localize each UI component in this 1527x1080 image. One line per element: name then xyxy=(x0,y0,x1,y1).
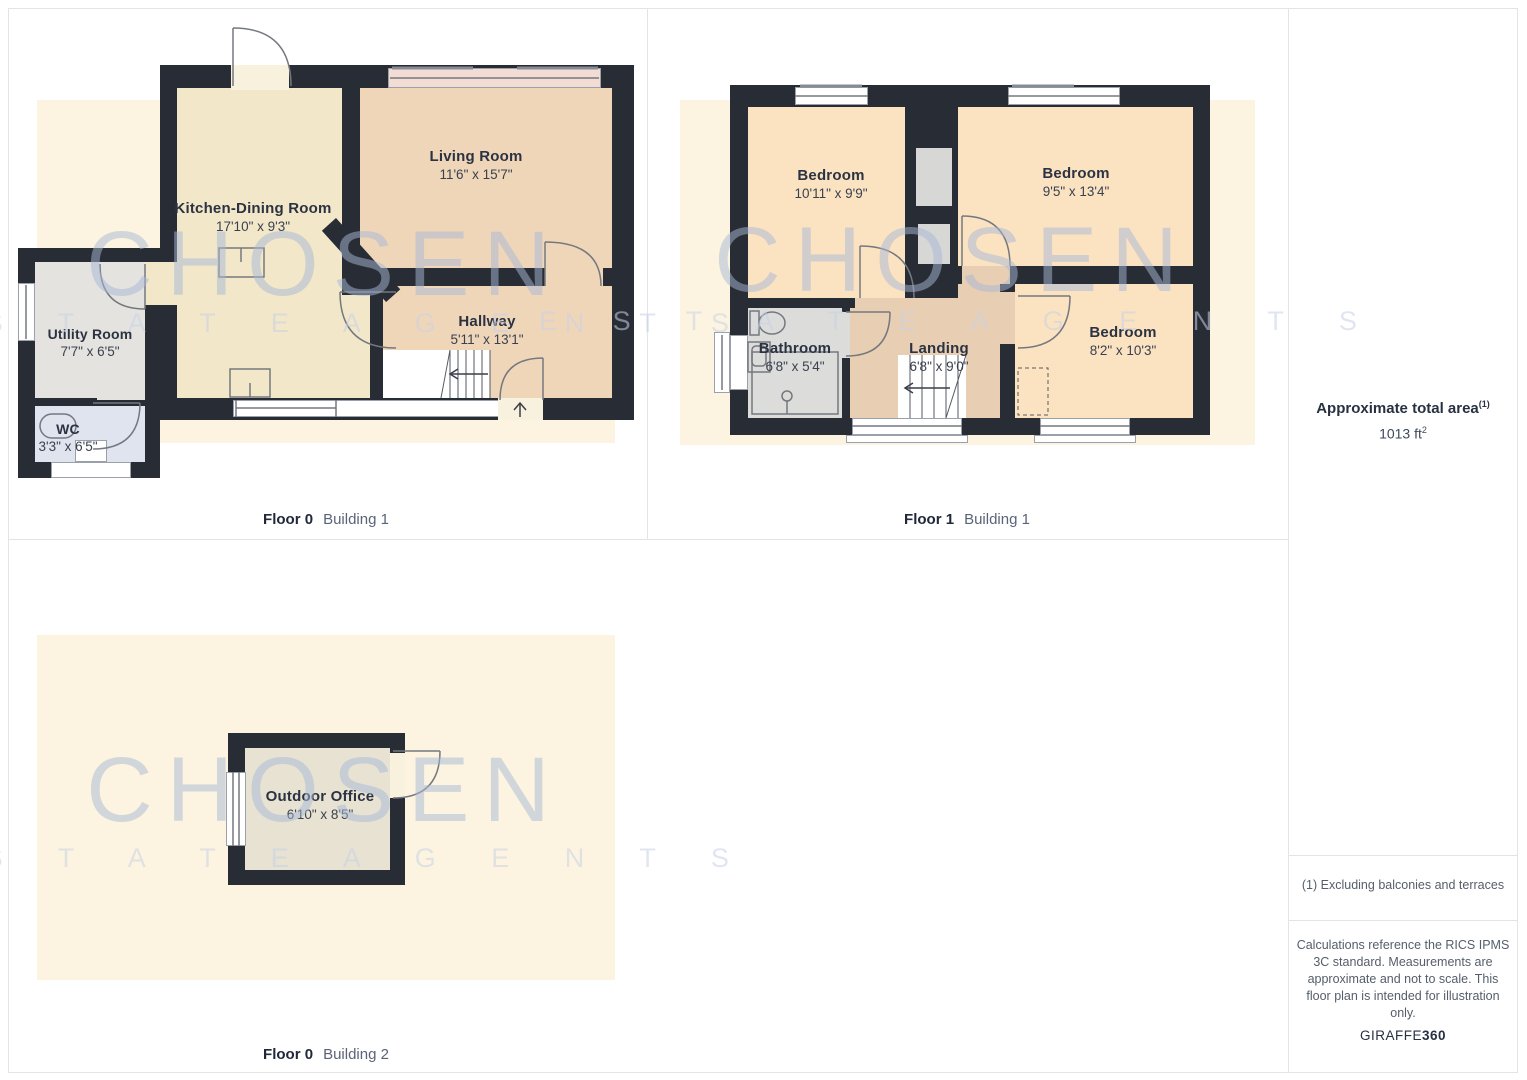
wardrobe-dashed xyxy=(1018,368,1048,415)
bed2-door-icon xyxy=(962,216,1010,266)
bed3-door-icon xyxy=(1018,296,1070,348)
kitchen-fixture-1 xyxy=(219,248,264,277)
entry-door-icon xyxy=(233,28,291,86)
plan-linework xyxy=(0,0,1527,1080)
sidebar-footnote: (1) Excluding balconies and terraces xyxy=(1296,877,1510,894)
caption-floor0-building2: Floor 0Building 2 xyxy=(263,1046,389,1063)
caption-floor1-building1: Floor 1Building 1 xyxy=(904,511,1030,528)
window-frames-top xyxy=(795,86,1120,96)
sidebar-disclaimer: Calculations reference the RICS IPMS 3C … xyxy=(1296,937,1510,1022)
label-landing: Landing 6'8" x 9'0" xyxy=(909,340,969,376)
floorplan-page: Kitchen-Dining Room 17'10" x 9'3" Living… xyxy=(0,0,1527,1080)
kitchen-fixture-2 xyxy=(230,369,270,397)
front-door-icon xyxy=(500,358,543,400)
label-bedroom1: Bedroom 10'11" x 9'9" xyxy=(794,167,867,203)
label-bathroom: Bathroom 6'8" x 5'4" xyxy=(759,340,831,376)
total-area-label: Approximate total area(1) xyxy=(1288,399,1518,417)
label-bedroom2: Bedroom 9'5" x 13'4" xyxy=(1042,165,1109,201)
caption-floor0-building1: Floor 0Building 1 xyxy=(263,511,389,528)
utility-door-icon xyxy=(100,264,145,309)
entrance-arrow-icon xyxy=(514,403,526,417)
label-office: Outdoor Office 6'10" x 8'5" xyxy=(266,788,375,824)
bay-window-frame xyxy=(390,68,599,78)
label-bedroom3: Bedroom 8'2" x 10'3" xyxy=(1089,324,1156,360)
wc-door-icon xyxy=(93,403,140,449)
label-hallway: Hallway 5'11" x 13'1" xyxy=(450,313,523,349)
label-utility: Utility Room 7'7" x 6'5" xyxy=(48,325,133,361)
bath-door-icon xyxy=(846,312,890,356)
total-area-value: 1013 ft2 xyxy=(1288,425,1518,442)
office-window-frame xyxy=(233,772,239,846)
kitchen-window-frame xyxy=(236,400,336,417)
office-door-icon xyxy=(393,751,440,798)
label-wc: WC 3'3" x 6'5" xyxy=(38,420,97,456)
toilet-icon xyxy=(750,311,785,335)
bed1-door-icon xyxy=(860,246,914,298)
label-living: Living Room 11'6" x 15'7" xyxy=(429,148,522,184)
footnote-marker: (1) xyxy=(1479,399,1490,409)
living-door-icon xyxy=(545,242,601,286)
label-kitchen: Kitchen-Dining Room 17'10" x 9'3" xyxy=(174,200,331,236)
giraffe360-logo: GIRAFFE360 xyxy=(1288,1028,1518,1043)
kitchen-hall-door-icon xyxy=(340,292,396,348)
stairs-floor0 xyxy=(383,350,490,398)
